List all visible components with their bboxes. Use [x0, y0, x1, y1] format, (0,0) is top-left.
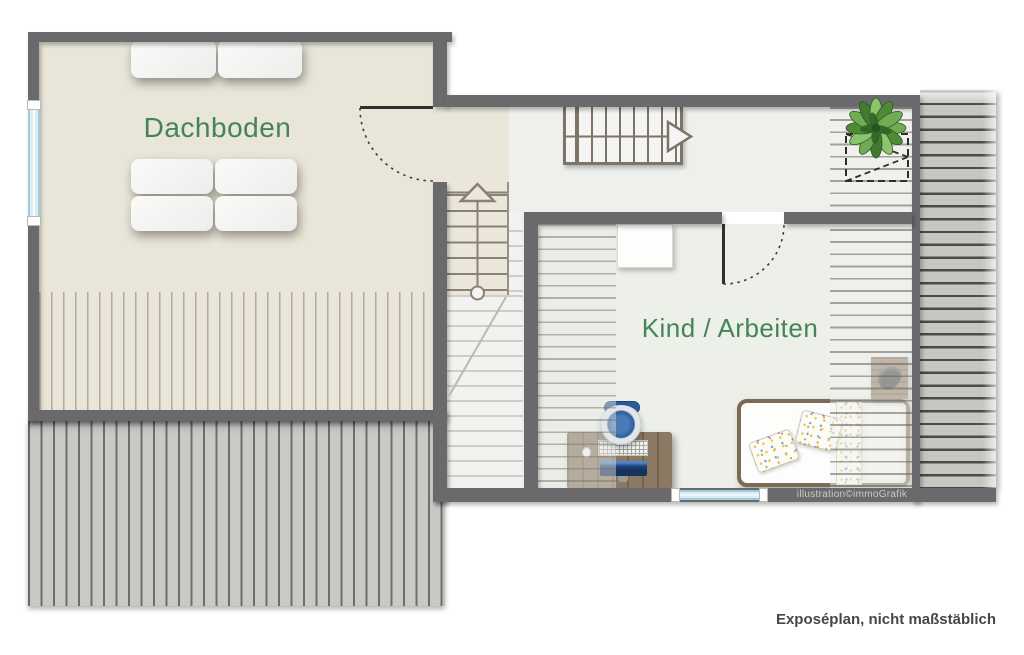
wall-room-west	[524, 224, 538, 488]
attic-mattress-middle	[131, 159, 297, 231]
window-cap	[671, 488, 680, 502]
illustrator-watermark: illustration©immoGrafik	[793, 489, 911, 500]
attic-slope-hatch	[39, 292, 433, 410]
wall-attic-left	[28, 42, 39, 421]
wall-divider-right	[784, 212, 912, 224]
lower-stair-treads	[509, 230, 523, 295]
mattress-cushion	[215, 196, 297, 231]
hallway-stairs	[563, 107, 683, 165]
window-cap	[759, 488, 768, 502]
window-cap	[27, 216, 41, 226]
attic-window	[28, 110, 40, 216]
white-dresser	[617, 224, 673, 268]
slope-hatch-right	[830, 107, 912, 488]
mattress-cushion	[215, 159, 297, 194]
child-room-window	[680, 490, 759, 500]
wall-outer-right	[912, 107, 920, 502]
wall-attic-top	[28, 32, 452, 42]
wall-attic-knee	[28, 410, 447, 421]
wall-attic-east-lower	[433, 182, 447, 502]
mattress-cushion	[131, 196, 213, 231]
stair-landing-floor	[447, 107, 509, 182]
child-room-label: Kind / Arbeiten	[625, 313, 835, 344]
attic-mattress-top	[131, 40, 302, 78]
mattress-cushion	[131, 159, 213, 194]
window-cap	[27, 100, 41, 110]
lower-stair-treads	[447, 295, 523, 488]
monitor-stand	[618, 476, 628, 482]
room-slope-hatch-left	[538, 224, 616, 488]
plan-caption: Exposéplan, nicht maßstäblich	[760, 611, 996, 628]
attic-stair-flight	[447, 182, 509, 295]
mattress-cushion	[131, 40, 216, 78]
roof-overhang-area	[28, 421, 445, 606]
floor-plan-canvas: Dachboden Kind / Arbeiten illustration©i…	[0, 0, 1024, 655]
wall-hall-top	[445, 95, 920, 107]
attic-room-label: Dachboden	[120, 112, 315, 144]
roof-edge-strip	[920, 90, 996, 488]
wall-divider-left	[524, 212, 722, 224]
mattress-cushion	[218, 40, 303, 78]
